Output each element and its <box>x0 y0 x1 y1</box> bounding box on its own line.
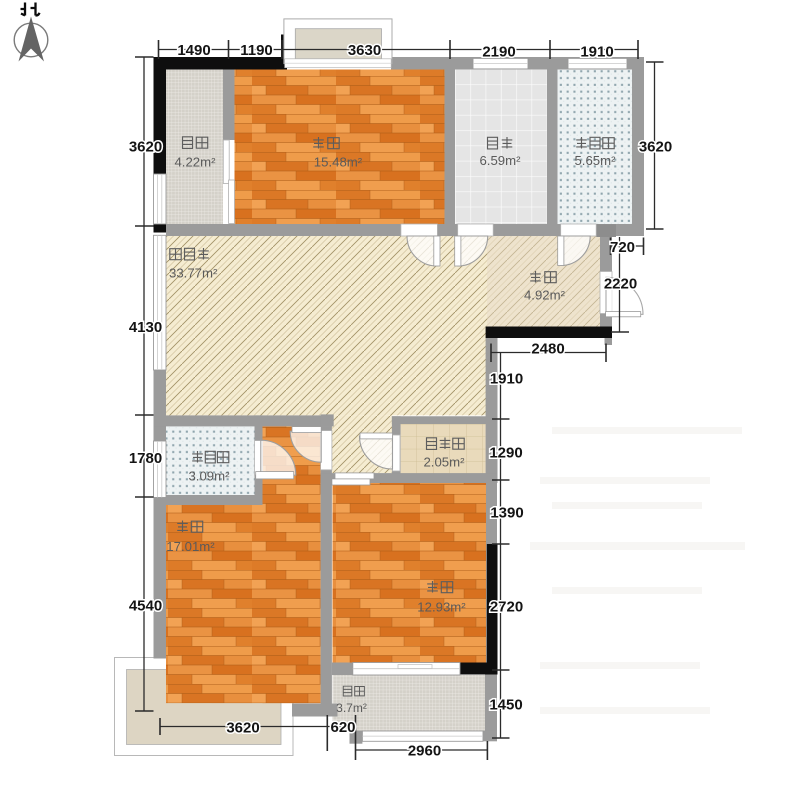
svg-text:2220: 2220 <box>604 276 637 293</box>
svg-text:3.7m²: 3.7m² <box>336 701 367 715</box>
svg-text:4.92m²: 4.92m² <box>524 288 566 303</box>
svg-text:4540: 4540 <box>129 598 162 615</box>
svg-text:3.09m²: 3.09m² <box>188 469 230 484</box>
svg-text:33.77m²: 33.77m² <box>169 266 218 281</box>
svg-text:1390: 1390 <box>490 505 523 522</box>
svg-text:3630: 3630 <box>348 42 381 59</box>
svg-text:2.05m²: 2.05m² <box>423 455 465 470</box>
svg-text:3620: 3620 <box>639 139 672 156</box>
svg-text:1910: 1910 <box>490 371 523 388</box>
svg-text:15.48m²: 15.48m² <box>314 155 363 170</box>
svg-text:620: 620 <box>330 719 355 736</box>
svg-text:1450: 1450 <box>489 697 522 714</box>
svg-text:4130: 4130 <box>129 319 162 336</box>
svg-text:3620: 3620 <box>129 139 162 156</box>
svg-text:6.59m²: 6.59m² <box>479 153 521 168</box>
svg-text:2960: 2960 <box>408 743 441 760</box>
svg-text:4.22m²: 4.22m² <box>174 155 216 170</box>
svg-text:2190: 2190 <box>482 44 515 61</box>
svg-text:3620: 3620 <box>226 720 259 737</box>
svg-text:1290: 1290 <box>489 445 522 462</box>
svg-text:17.01m²: 17.01m² <box>166 539 215 554</box>
svg-text:1190: 1190 <box>240 42 273 59</box>
svg-text:720: 720 <box>610 239 635 256</box>
svg-text:12.93m²: 12.93m² <box>417 600 466 615</box>
svg-text:1490: 1490 <box>177 42 210 59</box>
svg-text:2480: 2480 <box>531 341 564 358</box>
svg-text:5.65m²: 5.65m² <box>574 153 616 168</box>
svg-text:2720: 2720 <box>490 599 523 616</box>
svg-text:1780: 1780 <box>129 450 162 467</box>
svg-text:1910: 1910 <box>580 44 613 61</box>
